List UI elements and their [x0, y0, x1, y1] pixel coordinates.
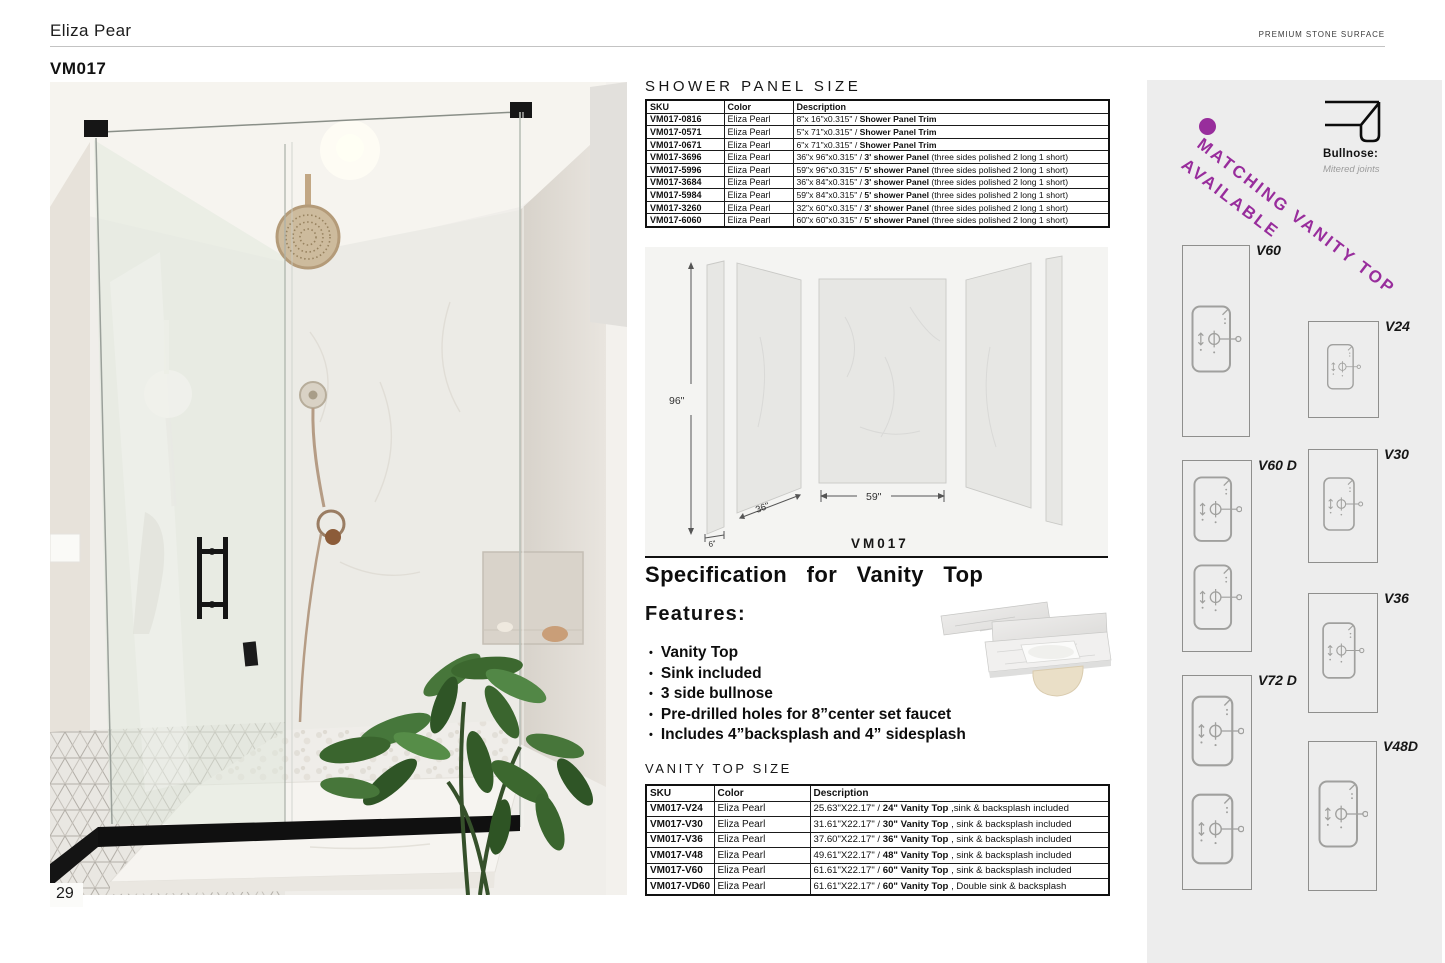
model-sinks: [1183, 461, 1251, 651]
model-sinks: [1309, 450, 1377, 562]
cell-color: Eliza Pearl: [724, 201, 793, 214]
vanity-model-label: V48D: [1383, 738, 1418, 754]
bullnose-profile-icon: [1323, 95, 1385, 147]
vanity-model-v60: V60: [1182, 245, 1250, 437]
dim-height: 96": [669, 395, 685, 407]
cell-sku: VM017-V48: [646, 848, 714, 864]
cell-color: Eliza Pearl: [724, 176, 793, 189]
cell-description: 36"x 96"x0.315" / 3' shower Panel (three…: [793, 151, 1109, 164]
cell-color: Eliza Pearl: [724, 189, 793, 202]
cell-description: 31.61"X22.17" / 30" Vanity Top , sink & …: [810, 817, 1109, 833]
trim-panel-right: [1046, 256, 1062, 525]
model-sinks: [1183, 246, 1249, 436]
table-row: VM017-0671Eliza Pearl6"x 71"x0.315" / Sh…: [646, 138, 1109, 151]
sink-glyph: [1192, 475, 1242, 543]
door-latch: [243, 641, 258, 666]
feature-item: •Includes 4”backsplash and 4” sidesplash: [649, 725, 966, 746]
cell-description: 5"x 71"x0.315" / Shower Panel Trim: [793, 126, 1109, 139]
header-sku: SKU: [646, 785, 714, 801]
cell-sku: VM017-3684: [646, 176, 724, 189]
table-row: VM017-V60Eliza Pearl61.61"X22.17" / 60" …: [646, 863, 1109, 879]
bullet-icon: •: [649, 729, 653, 741]
side-panel-left: [737, 263, 801, 513]
vanity-model-label: V60: [1256, 242, 1281, 258]
header-description: Description: [793, 100, 1109, 113]
table-row: VM017-5984Eliza Pearl59"x 84"x0.315" / 5…: [646, 189, 1109, 202]
model-code: VM017: [50, 59, 106, 79]
sink-glyph: [1326, 343, 1361, 391]
vanity-model-v60d: V60 D: [1182, 460, 1252, 652]
cell-description: 6"x 71"x0.315" / Shower Panel Trim: [793, 138, 1109, 151]
shower-arm: [305, 174, 311, 206]
table-row: VM017-0816Eliza Pearl8"x 16"x0.315" / Sh…: [646, 113, 1109, 126]
header-divider: [50, 46, 1385, 47]
diagram-caption: VM017: [851, 536, 909, 551]
header-color: Color: [724, 100, 793, 113]
header-sku: SKU: [646, 100, 724, 113]
cell-sku: VM017-V36: [646, 832, 714, 848]
shower-panel-diagram: 96" 59" 36" 6" VM017: [645, 247, 1108, 556]
cell-description: 60"x 60"x0.315" / 5' shower Panel (three…: [793, 214, 1109, 227]
vanity-model-label: V36: [1384, 590, 1409, 606]
feature-item: •Pre-drilled holes for 8”center set fauc…: [649, 705, 966, 726]
cell-color: Eliza Pearl: [714, 879, 810, 895]
vanity-top-size-title: VANITY TOP SIZE: [645, 761, 792, 776]
model-sinks: [1309, 594, 1377, 712]
cell-sku: VM017-6060: [646, 214, 724, 227]
bullet-icon: •: [649, 688, 653, 700]
header-description: Description: [810, 785, 1109, 801]
cell-sku: VM017-3696: [646, 151, 724, 164]
cell-sku: VM017-V60: [646, 863, 714, 879]
side-panel-right: [966, 263, 1031, 508]
sink-glyph: [1322, 476, 1363, 532]
sink-bowl: [1033, 666, 1083, 696]
cell-color: Eliza Pearl: [724, 163, 793, 176]
vanity-model-label: V30: [1384, 446, 1409, 462]
vanity-model-v36: V36: [1308, 593, 1378, 713]
table-row: VM017-V30Eliza Pearl31.61"X22.17" / 30" …: [646, 817, 1109, 833]
brand-name: Eliza Pear: [50, 21, 131, 41]
table-header-row: SKU Color Description: [646, 100, 1109, 113]
cell-description: 59"x 84"x0.315" / 5' shower Panel (three…: [793, 189, 1109, 202]
table-row: VM017-3684Eliza Pearl36"x 84"x0.315" / 3…: [646, 176, 1109, 189]
model-sinks: [1309, 742, 1376, 890]
shower-panel-size-title: SHOWER PANEL SIZE: [645, 78, 861, 95]
bullet-icon: •: [649, 647, 653, 659]
shower-table-body: VM017-0816Eliza Pearl8"x 16"x0.315" / Sh…: [646, 113, 1109, 227]
table-row: VM017-V48Eliza Pearl49.61"X22.17" / 48" …: [646, 848, 1109, 864]
cell-color: Eliza Pearl: [724, 214, 793, 227]
bullnose-label: Bullnose:: [1323, 148, 1378, 160]
vanity-table-body: VM017-V24Eliza Pearl25.63"X22.17" / 24" …: [646, 801, 1109, 895]
back-panel: [819, 279, 946, 483]
vanity-model-label: V24: [1385, 318, 1410, 334]
sink-glyph: [1192, 563, 1242, 631]
vanity-top-table: SKU Color Description VM017-V24Eliza Pea…: [645, 784, 1110, 896]
sink-glyph: [1321, 621, 1365, 680]
cell-color: Eliza Pearl: [714, 848, 810, 864]
cell-sku: VM017-5996: [646, 163, 724, 176]
section-divider: [645, 556, 1108, 558]
brand-tagline: PREMIUM STONE SURFACE: [1259, 30, 1385, 39]
header-color: Color: [714, 785, 810, 801]
table-row: VM017-5996Eliza Pearl59"x 96"x0.315" / 5…: [646, 163, 1109, 176]
cell-color: Eliza Pearl: [714, 801, 810, 817]
spec-title: Specification for Vanity Top: [645, 562, 983, 588]
dim-back-width: 59": [866, 491, 882, 503]
matching-vanity-panel: Bullnose: Mitered joints MATCHING VANITY…: [1147, 80, 1442, 963]
cell-color: Eliza Pearl: [724, 138, 793, 151]
cell-sku: VM017-0671: [646, 138, 724, 151]
trim-panel-left: [707, 261, 724, 534]
cell-sku: VM017-5984: [646, 189, 724, 202]
cell-sku: VM017-0816: [646, 113, 724, 126]
sink-glyph: [1190, 694, 1245, 768]
cell-description: 36"x 84"x0.315" / 3' shower Panel (three…: [793, 176, 1109, 189]
feature-item: •Vanity Top: [649, 643, 966, 664]
sink-glyph: [1190, 792, 1245, 866]
sink-glyph: [1317, 779, 1369, 849]
vanity-model-v30: V30: [1308, 449, 1378, 563]
cell-sku: VM017-VD60: [646, 879, 714, 895]
table-row: VM017-V24Eliza Pearl25.63"X22.17" / 24" …: [646, 801, 1109, 817]
cell-description: 32"x 60"x0.315" / 3' shower Panel (three…: [793, 201, 1109, 214]
cell-description: 8"x 16"x0.315" / Shower Panel Trim: [793, 113, 1109, 126]
cell-color: Eliza Pearl: [714, 863, 810, 879]
table-row: VM017-0571Eliza Pearl5"x 71"x0.315" / Sh…: [646, 126, 1109, 139]
sink-glyph: [1190, 304, 1242, 374]
cell-color: Eliza Pearl: [714, 832, 810, 848]
table-row: VM017-3260Eliza Pearl32"x 60"x0.315" / 3…: [646, 201, 1109, 214]
bullnose-sublabel: Mitered joints: [1323, 164, 1380, 175]
page-number: 29: [50, 883, 83, 907]
table-header-row: SKU Color Description: [646, 785, 1109, 801]
vanity-top-photo: [935, 596, 1113, 702]
vanity-model-label: V60 D: [1258, 457, 1297, 473]
table-row: VM017-3696Eliza Pearl36"x 96"x0.315" / 3…: [646, 151, 1109, 164]
cell-description: 49.61"X22.17" / 48" Vanity Top , sink & …: [810, 848, 1109, 864]
feature-item: •Sink included: [649, 664, 966, 685]
table-row: VM017-VD60Eliza Pearl61.61"X22.17" / 60"…: [646, 879, 1109, 895]
cell-description: 61.61"X22.17" / 60" Vanity Top , Double …: [810, 879, 1109, 895]
cell-color: Eliza Pearl: [724, 113, 793, 126]
model-sinks: [1183, 676, 1251, 889]
features-heading: Features:: [645, 603, 746, 626]
cell-description: 59"x 96"x0.315" / 5' shower Panel (three…: [793, 163, 1109, 176]
vanity-model-v48d: V48D: [1308, 741, 1377, 891]
cell-sku: VM017-0571: [646, 126, 724, 139]
cell-description: 61.61"X22.17" / 60" Vanity Top , sink & …: [810, 863, 1109, 879]
model-sinks: [1309, 322, 1378, 417]
cell-color: Eliza Pearl: [724, 151, 793, 164]
bullet-icon: •: [649, 709, 653, 721]
glass-door: [94, 140, 285, 824]
cell-color: Eliza Pearl: [714, 817, 810, 833]
feature-item: •3 side bullnose: [649, 684, 966, 705]
table-row: VM017-V36Eliza Pearl37.60"X22.17" / 36" …: [646, 832, 1109, 848]
shower-product-photo: [50, 82, 627, 895]
vanity-model-v72d: V72 D: [1182, 675, 1252, 890]
cell-sku: VM017-3260: [646, 201, 724, 214]
vanity-model-label: V72 D: [1258, 672, 1297, 688]
cell-sku: VM017-V30: [646, 817, 714, 833]
cell-color: Eliza Pearl: [724, 126, 793, 139]
vanity-model-v24: V24: [1308, 321, 1379, 418]
cell-description: 25.63"X22.17" / 24" Vanity Top ,sink & b…: [810, 801, 1109, 817]
bullet-icon: •: [649, 668, 653, 680]
catalog-page: Eliza Pear PREMIUM STONE SURFACE VM017: [0, 0, 1445, 963]
table-row: VM017-6060Eliza Pearl60"x 60"x0.315" / 5…: [646, 214, 1109, 227]
shower-panel-table: SKU Color Description VM017-0816Eliza Pe…: [645, 99, 1110, 228]
features-list: •Vanity Top•Sink included•3 side bullnos…: [649, 643, 966, 746]
cell-sku: VM017-V24: [646, 801, 714, 817]
cell-description: 37.60"X22.17" / 36" Vanity Top , sink & …: [810, 832, 1109, 848]
